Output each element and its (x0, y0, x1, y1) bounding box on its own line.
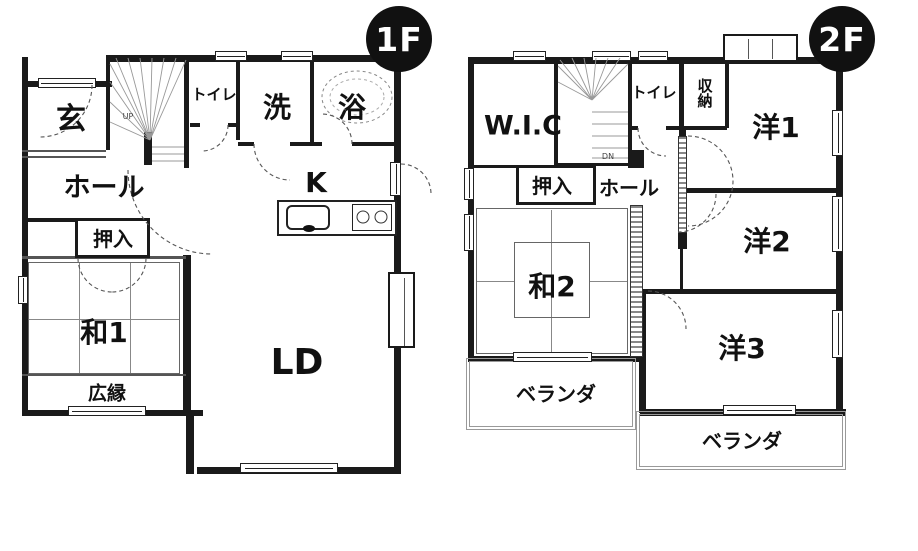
room-label-wa2: 和2 (528, 273, 575, 301)
stair-fan-2f (558, 58, 628, 158)
room-label-bath: 浴 (338, 94, 366, 122)
room-label-yo1: 洋1 (752, 114, 799, 142)
window (240, 463, 338, 473)
wall (228, 123, 238, 127)
sliding-door-hall (678, 136, 687, 233)
window (281, 51, 313, 61)
window (68, 406, 146, 416)
window (464, 168, 474, 200)
window (592, 51, 631, 61)
wall (628, 57, 632, 152)
room-label-hall-1f: ホール (64, 175, 145, 202)
wall (666, 126, 682, 130)
back-door-opening (390, 162, 401, 196)
wall (683, 188, 842, 193)
room-label-yo2: 洋2 (743, 228, 790, 256)
room-label-shunou: 収納 (697, 78, 712, 108)
room-label-oshiire-1f: 押入 (93, 229, 133, 249)
wall (238, 142, 254, 146)
window (464, 214, 474, 251)
room-label-veranda-right: ベランダ (702, 431, 782, 451)
wall (186, 410, 194, 474)
wall (290, 142, 314, 146)
room-label-wash: 洗 (263, 94, 291, 122)
wall (106, 55, 110, 150)
room-label-oshiire-2f: 押入 (532, 176, 572, 196)
floor-badge-2f: 2F (809, 6, 875, 72)
window (832, 310, 843, 358)
wall (144, 132, 152, 165)
room-label-genkan: 玄 (56, 105, 86, 135)
wall (678, 233, 687, 249)
wall (22, 218, 78, 222)
wall (630, 126, 638, 130)
room-label-ld: LD (271, 345, 324, 381)
wall (314, 142, 322, 146)
wall (190, 123, 200, 127)
wall (725, 57, 729, 128)
wall (394, 55, 401, 474)
wall-thin (680, 249, 683, 291)
window (513, 51, 546, 61)
bay-window-ld (388, 272, 415, 348)
wall-thin (468, 165, 516, 168)
room-label-hall-2f: ホール (599, 178, 659, 198)
step-line (22, 156, 106, 158)
window (513, 352, 592, 362)
wall (468, 57, 474, 362)
floor-badge-1f: 1F (366, 6, 432, 72)
window (215, 51, 247, 61)
window (832, 196, 843, 252)
hiroen-divider (22, 374, 186, 376)
stair-dn-label: DN (602, 153, 614, 161)
wall (645, 289, 842, 294)
wall (183, 255, 191, 416)
wall (682, 126, 727, 130)
room-label-veranda-left: ベランダ (516, 384, 596, 404)
room-label-toilet-1f: トイレ (191, 88, 236, 103)
bay-window-yo1 (723, 34, 798, 62)
wall (184, 55, 189, 168)
room-label-wic: W.I.C (484, 113, 562, 140)
room-label-hiroen: 広縁 (88, 385, 126, 404)
floor-plan-canvas: 玄 ホール 押入 トイレ 洗 浴 K 和1 広縁 LD UP 1F (0, 0, 918, 551)
room-label-yo3: 洋3 (718, 335, 765, 363)
kitchen-stove (352, 204, 392, 231)
wall (106, 55, 400, 62)
stair-up-label: UP (123, 113, 134, 121)
room-label-toilet-2f: トイレ (631, 86, 676, 101)
room-label-wa1: 和1 (80, 319, 127, 347)
window (18, 276, 28, 304)
window (723, 405, 796, 415)
wall (310, 55, 314, 142)
wall (352, 142, 394, 146)
room-label-kitchen: K (305, 169, 327, 197)
sliding-door-wa2 (630, 205, 643, 357)
wall (236, 55, 240, 140)
window (638, 51, 668, 61)
kitchen-faucet (303, 225, 315, 232)
step-line (22, 150, 106, 152)
entry-door (38, 78, 96, 88)
window (832, 110, 843, 156)
wall (682, 126, 686, 136)
